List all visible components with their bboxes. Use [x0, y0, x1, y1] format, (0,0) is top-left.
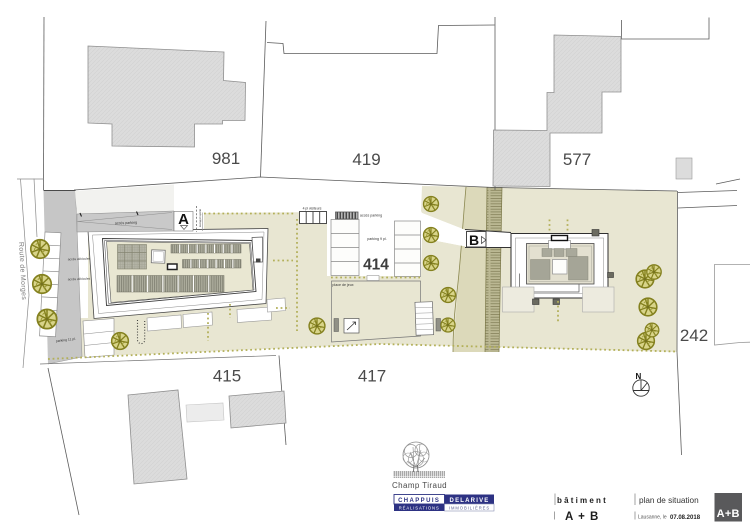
svg-text:Lausanne, le: Lausanne, le: [638, 515, 667, 521]
svg-text:IMMOBILIÈRES: IMMOBILIÈRES: [449, 506, 490, 511]
svg-text:CHAPPUIS: CHAPPUIS: [398, 498, 440, 504]
svg-text:4 pl visiteurs: 4 pl visiteurs: [303, 207, 322, 211]
svg-text:plan de situation: plan de situation: [639, 496, 699, 505]
svg-text:N: N: [636, 372, 642, 381]
svg-text:981: 981: [212, 149, 240, 168]
svg-text:414: 414: [363, 257, 389, 274]
svg-text:415: 415: [213, 367, 241, 386]
svg-text:accès véhicules: accès véhicules: [68, 277, 91, 282]
svg-text:A+B: A+B: [717, 508, 740, 520]
svg-text:accès piétons: accès piétons: [199, 209, 203, 228]
svg-text:B: B: [469, 232, 479, 248]
svg-text:accès parking: accès parking: [115, 221, 137, 226]
svg-text:bâtiment: bâtiment: [557, 496, 608, 505]
svg-text:242: 242: [680, 326, 708, 345]
svg-text:accès parking: accès parking: [360, 214, 382, 218]
svg-text:A + B: A + B: [565, 511, 599, 523]
svg-text:417: 417: [358, 367, 386, 386]
svg-text:419: 419: [352, 150, 380, 169]
svg-text:Champ Tiraud: Champ Tiraud: [392, 481, 447, 490]
svg-text:parking 9 pl.: parking 9 pl.: [367, 237, 387, 241]
svg-text:accès véhicules: accès véhicules: [68, 257, 91, 262]
svg-text:DELARIVE: DELARIVE: [450, 498, 490, 504]
svg-text:577: 577: [563, 150, 591, 169]
svg-text:RÉALISATIONS: RÉALISATIONS: [399, 506, 440, 511]
svg-text:place de jeux: place de jeux: [332, 283, 353, 287]
svg-text:07.08.2018: 07.08.2018: [670, 515, 701, 521]
